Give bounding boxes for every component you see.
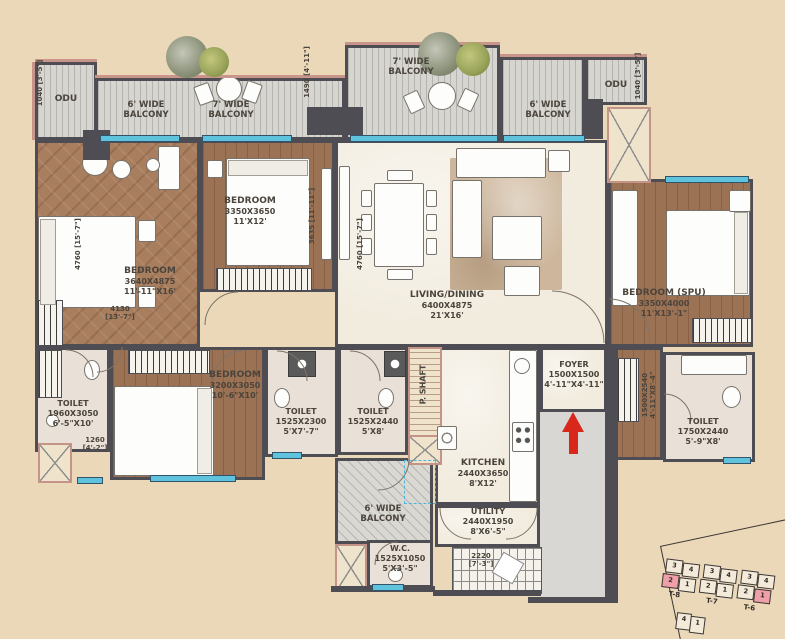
toilet-3-label: TOILET 1525X2440 5'X8' xyxy=(338,407,408,437)
window xyxy=(77,477,103,484)
balcony-bottom-label: 6' WIDE BALCONY xyxy=(352,504,414,524)
unit-box: 1 xyxy=(715,583,734,599)
window xyxy=(350,135,498,142)
window xyxy=(503,135,585,142)
odu-right-label: ODU xyxy=(596,80,636,91)
toilet-2-label: TOILET 1525X2300 5'X7'-7" xyxy=(266,407,336,437)
tree-icon xyxy=(456,42,490,76)
outer-wall-lip xyxy=(500,54,647,57)
unit-box: 3 xyxy=(665,558,684,574)
dim-odu-left: 1040 [3'-5"] xyxy=(36,48,44,118)
unit-box: 4 xyxy=(757,574,776,590)
window xyxy=(150,475,236,482)
dim-laundry-w: 2220 [7'-3"] xyxy=(466,552,496,568)
bedroom-3-label: BEDROOM 3200X3050 10'-6"X10' xyxy=(193,370,277,401)
outer-wall-lip xyxy=(35,59,97,62)
dim-passage-ft: 4'-11"X8'-4" xyxy=(649,343,657,447)
tree-icon xyxy=(199,47,229,77)
balcony-top-left-label: 6' WIDE BALCONY xyxy=(120,100,172,120)
unit-box: 4 xyxy=(719,568,738,584)
floor-plan: ODU 6' WIDE BALCONY 7' WIDE BALCONY 7' W… xyxy=(0,0,785,639)
toilet-1-label: TOILET 1960X3050 6'-5"X10' xyxy=(41,399,105,429)
unit-box-highlighted: 1 xyxy=(753,588,772,604)
balcony-top-right-label: 6' WIDE BALCONY xyxy=(520,100,576,120)
living-dining-label: LIVING/DINING 6400X4875 21'X16' xyxy=(395,290,499,321)
dim-living-h: 4760 [15'-7"] xyxy=(356,209,364,279)
outer-wall xyxy=(433,590,541,596)
toilet-4-label: TOILET 1750X2440 5'-9"X8' xyxy=(668,417,738,447)
unit-box-highlighted: 2 xyxy=(661,573,680,589)
tower-label: T-7 xyxy=(699,596,724,607)
balcony-top-left7-label: 7' WIDE BALCONY xyxy=(205,100,257,120)
utility-label: UTILITY 2440X1950 8'X6'-5" xyxy=(452,507,524,537)
wall-column xyxy=(583,99,603,139)
window xyxy=(202,135,292,142)
entry-arrow-icon xyxy=(562,412,584,432)
unit-box: 2 xyxy=(699,579,718,595)
window xyxy=(723,457,751,464)
p-shaft-label: P. SHAFT xyxy=(419,342,428,428)
dim-balcony-depth: 1490 [4'-11"] xyxy=(303,37,311,107)
odu-left-label: ODU xyxy=(43,94,89,105)
window xyxy=(372,584,404,591)
entry-arrow-icon xyxy=(569,431,578,454)
key-plan-partial-tower: 4 1 xyxy=(675,612,707,636)
unit-box: 1 xyxy=(689,616,706,635)
window xyxy=(272,452,302,459)
balcony-top-center-label: 7' WIDE BALCONY xyxy=(383,57,439,77)
window xyxy=(100,135,180,142)
kitchen-label: KITCHEN 2440X3650 8'X12' xyxy=(447,458,519,489)
outer-wall-lip xyxy=(32,62,35,140)
dim-odu-right: 1040 [3'-5"] xyxy=(634,41,642,111)
bedroom-left-label: BEDROOM 3640X4875 11'-11"X16' xyxy=(108,266,192,297)
window xyxy=(665,176,749,183)
dim-toilet-1-w: 1260 [4'-2"] xyxy=(78,436,112,452)
dim-bedroom-left-w: 4130 [13'-7"] xyxy=(98,305,142,321)
dim-passage-mm: 1500X2540 xyxy=(641,343,649,447)
bedroom-2-label: BEDROOM 3350X3650 11'X12' xyxy=(208,196,292,227)
dim-bedroom-2-h: 3635 [11'-11"] xyxy=(308,181,316,251)
wall-column xyxy=(307,107,363,135)
corridor-wall xyxy=(528,597,618,603)
unit-box: 4 xyxy=(682,562,701,578)
unit-box: 3 xyxy=(740,570,759,586)
bedroom-spu-label: BEDROOM (SPU) 3350X4000 11'X13'-1" xyxy=(618,288,710,319)
unit-box: 2 xyxy=(736,584,755,600)
key-plan: 3 4 3 4 3 4 2 1 2 1 2 1 T-8 T-7 T-6 4 1 xyxy=(648,518,785,639)
tower-label: T-6 xyxy=(737,602,762,613)
tower-label: T-8 xyxy=(662,589,687,600)
foyer-label: FOYER 1500X1500 4'-11"X4'-11" xyxy=(534,360,614,390)
unit-box: 3 xyxy=(703,564,722,580)
dim-bedroom-left-h: 4760 [15'-7"] xyxy=(74,209,82,279)
wc-label: W.C. 1525X1050 5'X3'-5" xyxy=(368,544,432,574)
sliding-door xyxy=(404,460,436,504)
